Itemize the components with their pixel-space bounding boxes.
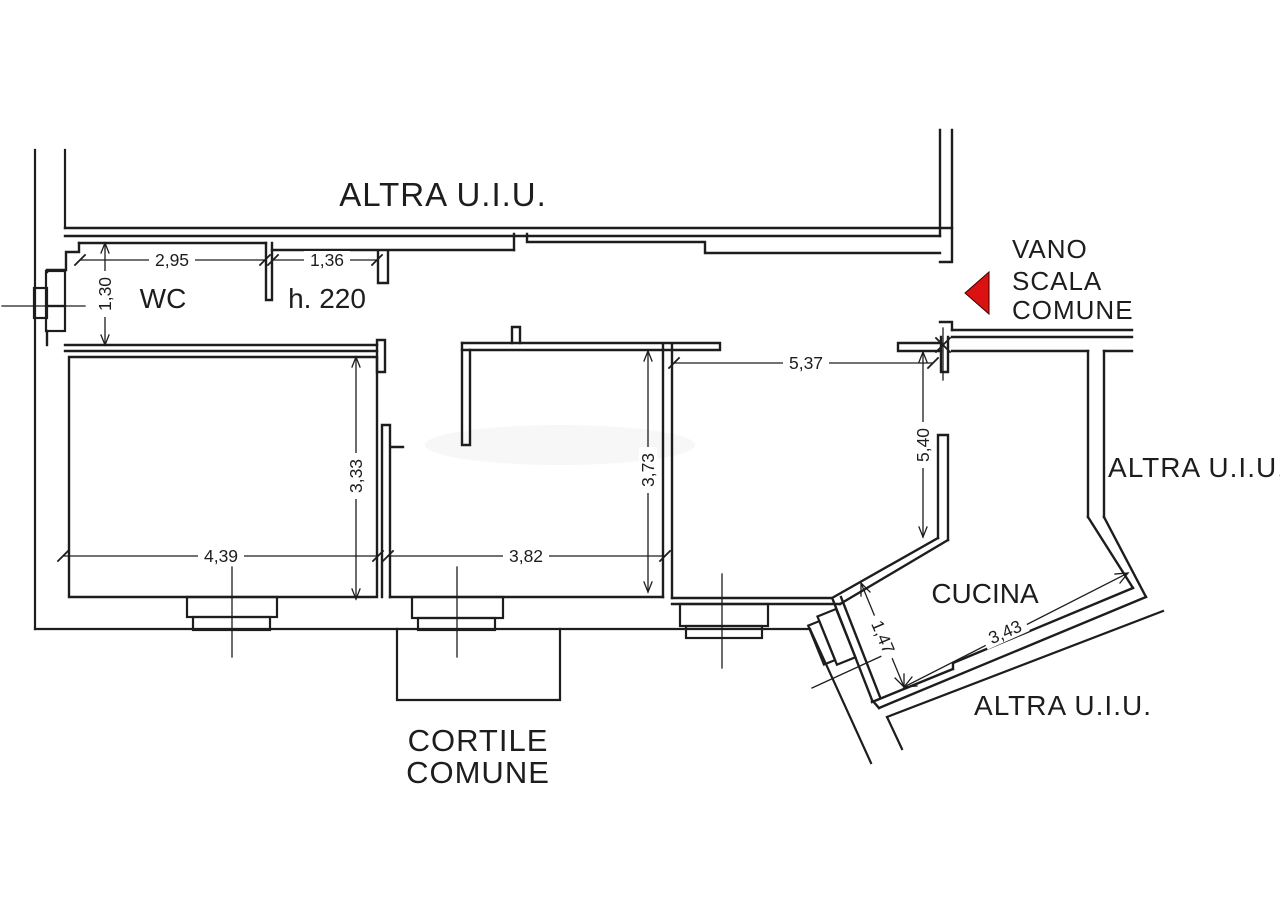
label-altra-uiu-top: ALTRA U.I.U. — [339, 176, 547, 213]
label-cucina: CUCINA — [931, 578, 1039, 609]
label-cortile-line2: COMUNE — [406, 755, 550, 790]
label-cortile-line1: CORTILE — [408, 723, 549, 758]
floor-plan-svg: 2,95 1,36 1,30 4,39 3,82 3,33 3,73 5,37 … — [0, 0, 1280, 910]
label-wc: WC — [140, 283, 187, 314]
dim-wc-width: 2,95 — [155, 250, 189, 270]
label-altra-uiu-right: ALTRA U.I.U. — [1108, 452, 1280, 483]
label-height-note: h. 220 — [288, 283, 366, 314]
label-vano-scala-line1: VANO — [1012, 234, 1088, 264]
entrance-arrow-icon — [965, 272, 989, 314]
dim-room-left-width: 4,39 — [204, 546, 238, 566]
label-vano-scala-line2: SCALA — [1012, 266, 1102, 296]
label-altra-uiu-bottom: ALTRA U.I.U. — [974, 690, 1152, 721]
dim-room-right-depth: 5,40 — [913, 428, 933, 462]
dim-wc-depth: 1,30 — [95, 277, 115, 311]
dim-hall-width: 1,36 — [310, 250, 344, 270]
dim-room-mid-depth: 3,73 — [638, 453, 658, 487]
window-middle-room — [412, 567, 503, 657]
dim-kitchen-door: 1,47 — [867, 617, 899, 656]
window-right-room — [680, 574, 768, 668]
dim-room-mid-width: 3,82 — [509, 546, 543, 566]
window-west-balcony — [2, 271, 85, 331]
dim-room-left-depth: 3,33 — [346, 459, 366, 493]
windows — [2, 271, 950, 688]
label-vano-scala-line3: COMUNE — [1012, 295, 1134, 325]
window-left-room — [187, 567, 277, 657]
floor-plan-page: 2,95 1,36 1,30 4,39 3,82 3,33 3,73 5,37 … — [0, 0, 1280, 910]
dim-room-right-width: 5,37 — [789, 353, 823, 373]
